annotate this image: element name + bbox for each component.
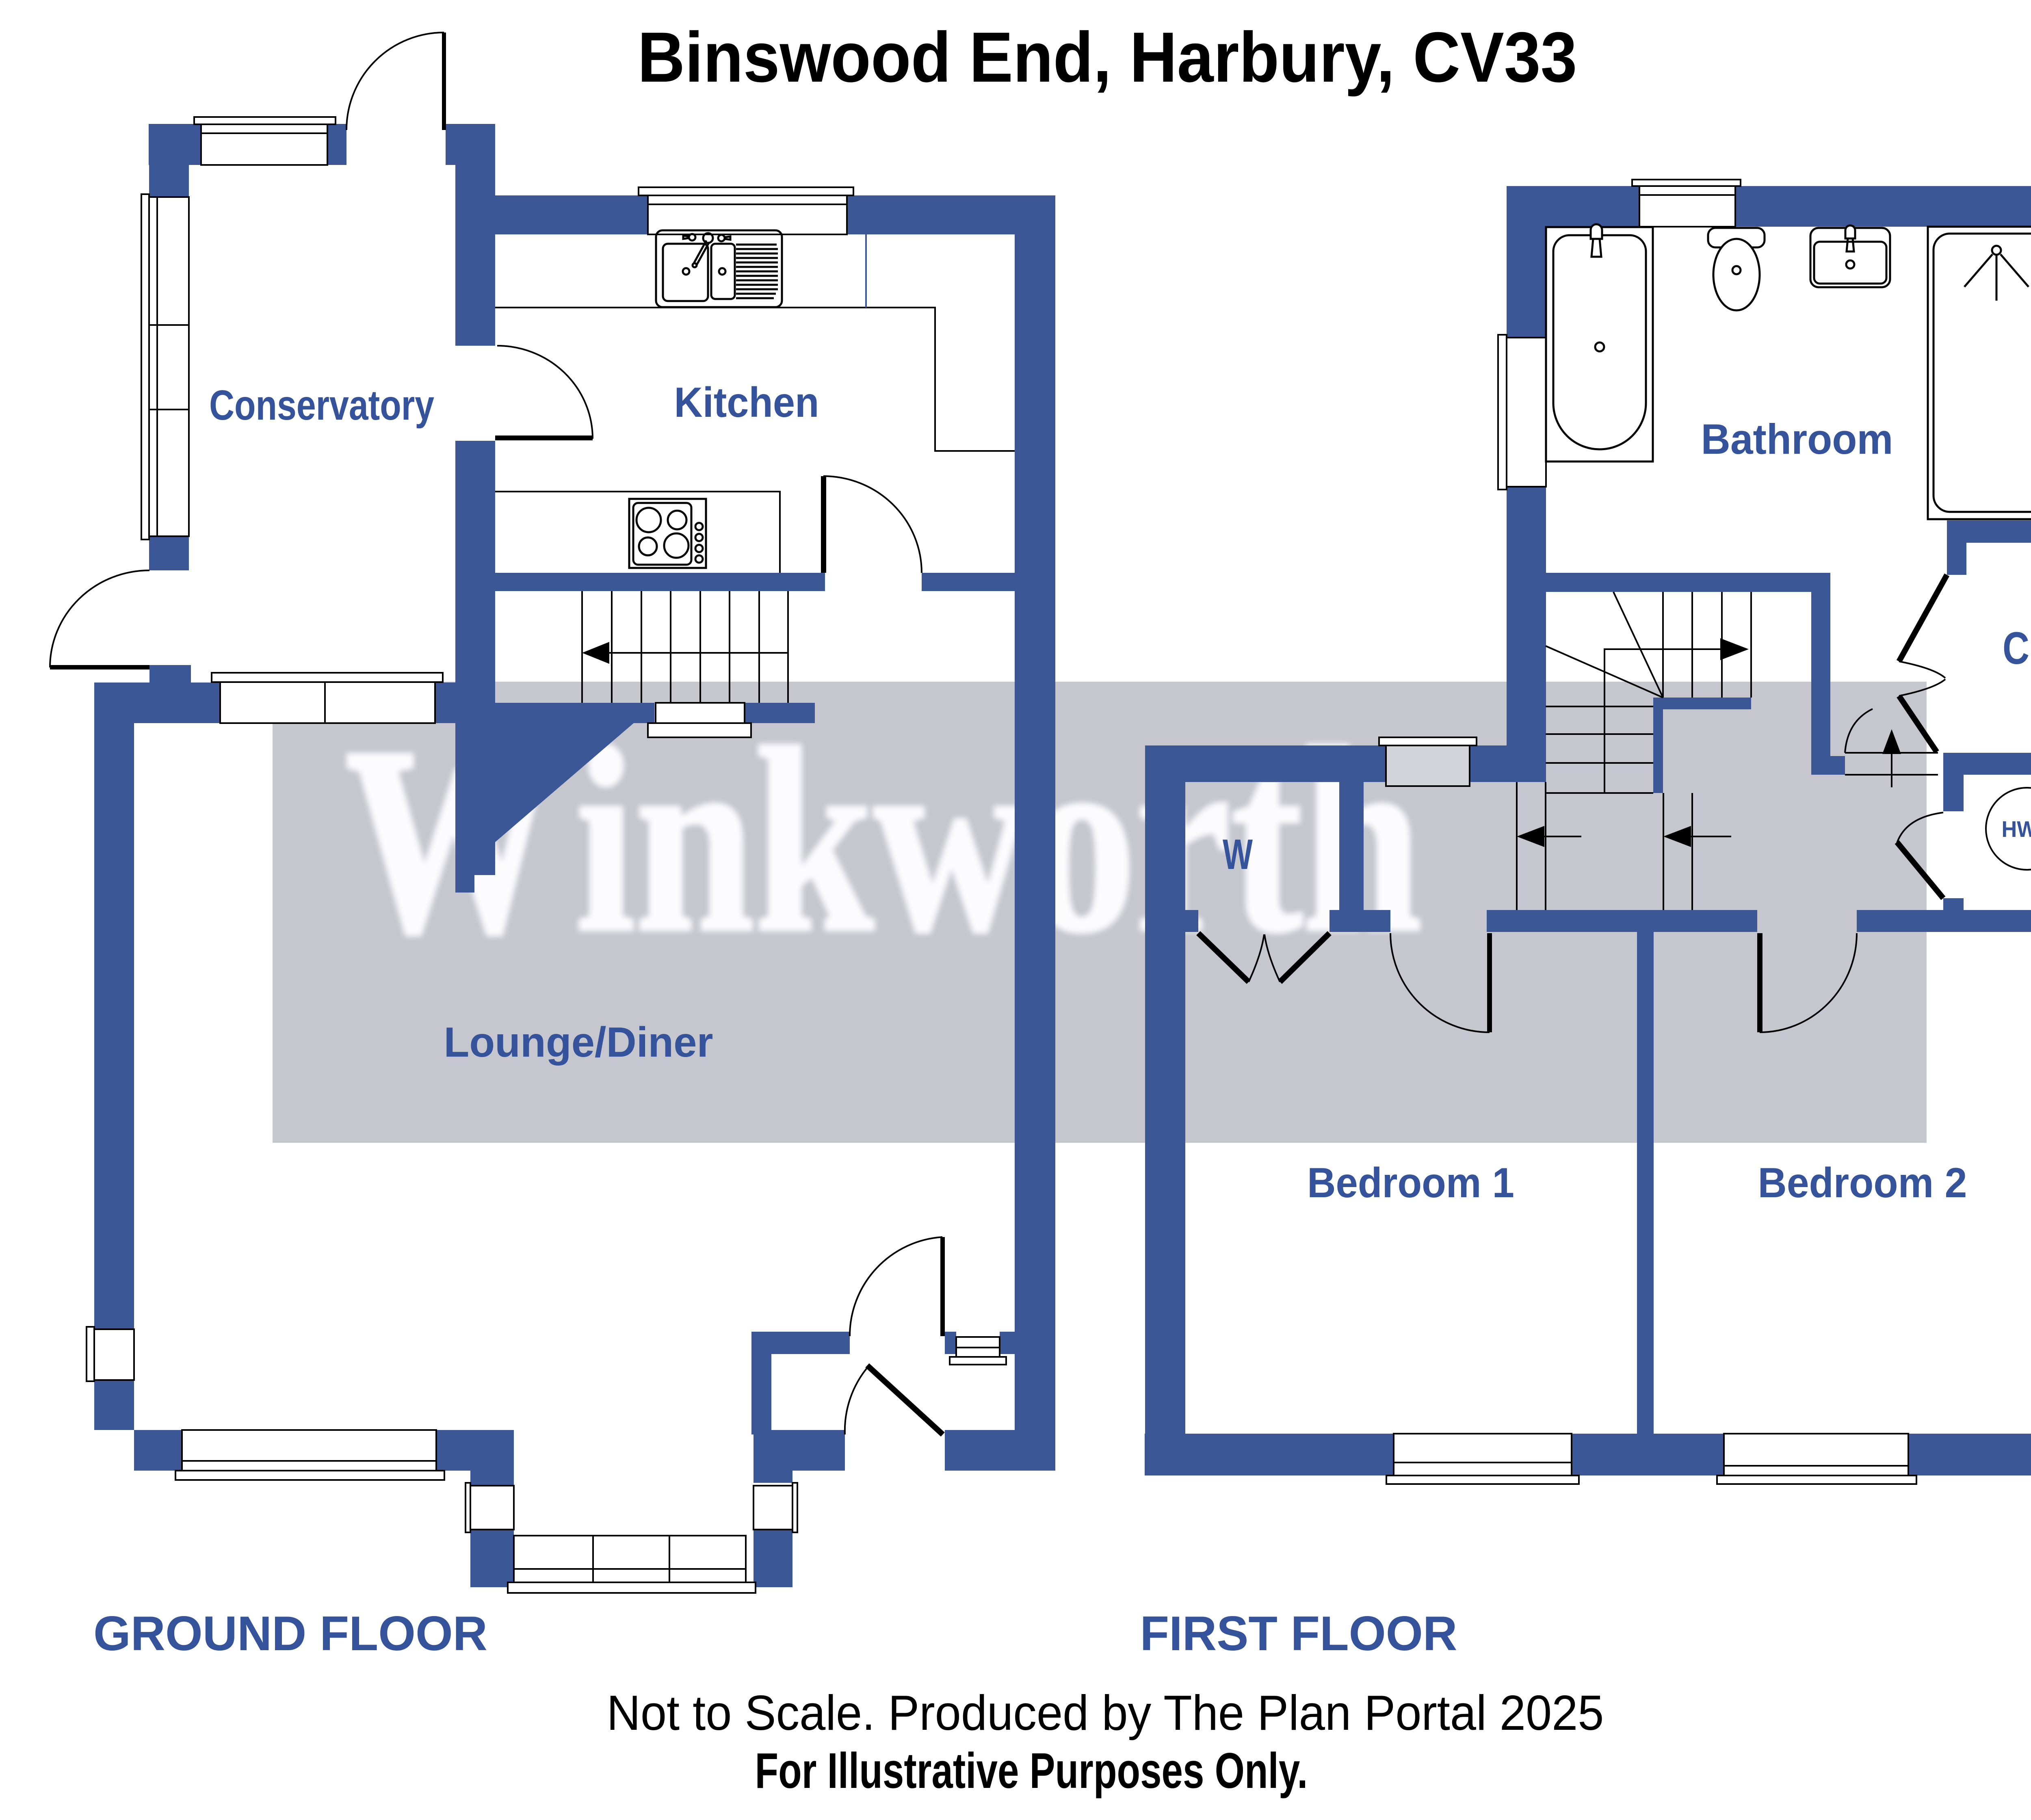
svg-text:Kitchen: Kitchen	[674, 379, 819, 426]
svg-text:FIRST FLOOR: FIRST FLOOR	[1140, 1606, 1457, 1661]
svg-text:HWC: HWC	[2002, 816, 2031, 842]
svg-text:Bedroom 1: Bedroom 1	[1307, 1159, 1514, 1207]
svg-text:Bedroom 2: Bedroom 2	[1758, 1159, 1967, 1207]
svg-text:Lounge/Diner: Lounge/Diner	[444, 1019, 713, 1066]
svg-text:C: C	[2003, 623, 2029, 674]
svg-text:For Illustrative Purposes Only: For Illustrative Purposes Only.	[755, 1743, 1308, 1799]
svg-text:Conservatory: Conservatory	[209, 382, 434, 429]
svg-text:Binswood End, Harbury, CV33: Binswood End, Harbury, CV33	[638, 18, 1577, 97]
svg-text:Not to Scale. Produced by The: Not to Scale. Produced by The Plan Porta…	[607, 1685, 1604, 1740]
svg-text:GROUND FLOOR: GROUND FLOOR	[93, 1606, 487, 1661]
svg-text:Bathroom: Bathroom	[1701, 416, 1893, 463]
svg-text:W: W	[1223, 831, 1253, 878]
